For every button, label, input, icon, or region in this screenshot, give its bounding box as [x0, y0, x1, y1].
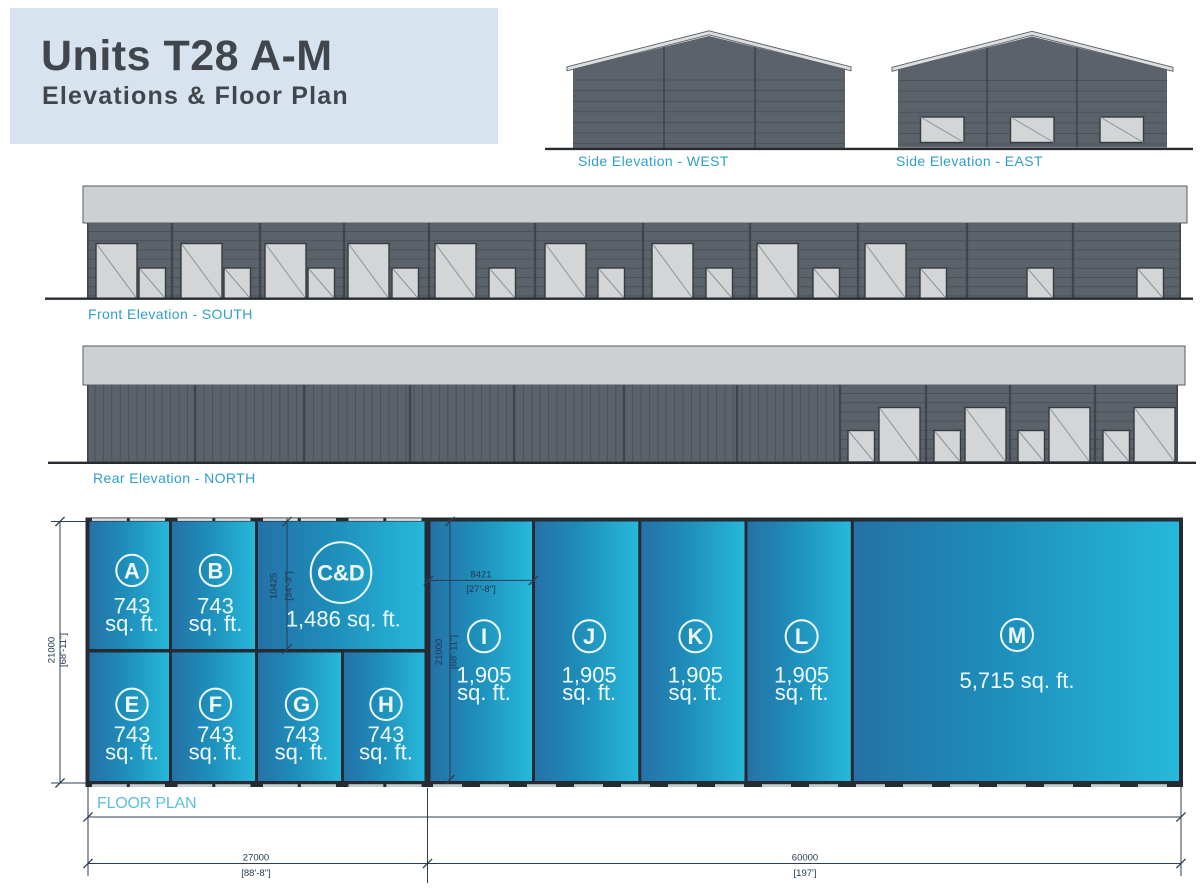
- svg-text:[27'-8"]: [27'-8"]: [466, 584, 495, 595]
- svg-text:H: H: [378, 692, 394, 717]
- svg-text:Side Elevation - WEST: Side Elevation - WEST: [578, 153, 729, 169]
- svg-text:K: K: [687, 624, 703, 649]
- svg-text:1,486 sq. ft.: 1,486 sq. ft.: [286, 607, 401, 632]
- svg-text:60000: 60000: [792, 853, 818, 864]
- svg-text:sq. ft.: sq. ft.: [105, 611, 159, 636]
- svg-text:sq. ft.: sq. ft.: [189, 740, 243, 765]
- svg-text:[68'-11"]: [68'-11"]: [58, 633, 69, 667]
- svg-text:8421: 8421: [470, 570, 491, 581]
- svg-text:I: I: [481, 624, 487, 649]
- svg-text:A: A: [124, 558, 140, 583]
- svg-text:F: F: [209, 692, 222, 717]
- svg-text:27000: 27000: [243, 853, 269, 864]
- svg-text:[68'-11"]: [68'-11"]: [449, 635, 460, 669]
- svg-text:5,715 sq. ft.: 5,715 sq. ft.: [960, 668, 1075, 693]
- svg-text:L: L: [795, 624, 808, 649]
- svg-text:E: E: [125, 692, 140, 717]
- svg-text:sq. ft.: sq. ft.: [669, 680, 723, 705]
- svg-text:J: J: [583, 624, 595, 649]
- svg-text:C&D: C&D: [317, 561, 365, 586]
- svg-text:Side Elevation - EAST: Side Elevation - EAST: [896, 153, 1043, 169]
- svg-text:Units T28 A-M: Units T28 A-M: [41, 32, 333, 80]
- svg-text:sq. ft.: sq. ft.: [359, 740, 413, 765]
- svg-text:Elevations & Floor Plan: Elevations & Floor Plan: [42, 82, 349, 110]
- svg-text:sq. ft.: sq. ft.: [775, 680, 829, 705]
- svg-text:FLOOR PLAN: FLOOR PLAN: [97, 795, 196, 812]
- svg-text:21000: 21000: [434, 639, 445, 665]
- svg-text:sq. ft.: sq. ft.: [189, 611, 243, 636]
- svg-text:B: B: [208, 558, 224, 583]
- svg-text:Front Elevation - SOUTH: Front Elevation - SOUTH: [88, 306, 253, 322]
- svg-text:M: M: [1008, 623, 1026, 648]
- svg-text:Rear Elevation - NORTH: Rear Elevation - NORTH: [93, 470, 256, 486]
- svg-text:[197']: [197']: [794, 868, 817, 879]
- svg-text:sq. ft.: sq. ft.: [275, 740, 329, 765]
- svg-text:21000: 21000: [47, 637, 58, 663]
- svg-text:sq. ft.: sq. ft.: [457, 680, 511, 705]
- svg-text:[88'-8"]: [88'-8"]: [241, 868, 270, 879]
- svg-text:10425: 10425: [269, 573, 280, 599]
- svg-text:sq. ft.: sq. ft.: [105, 740, 159, 765]
- svg-text:[34'-3"]: [34'-3"]: [284, 571, 295, 600]
- svg-text:sq. ft.: sq. ft.: [562, 680, 616, 705]
- svg-text:G: G: [293, 692, 310, 717]
